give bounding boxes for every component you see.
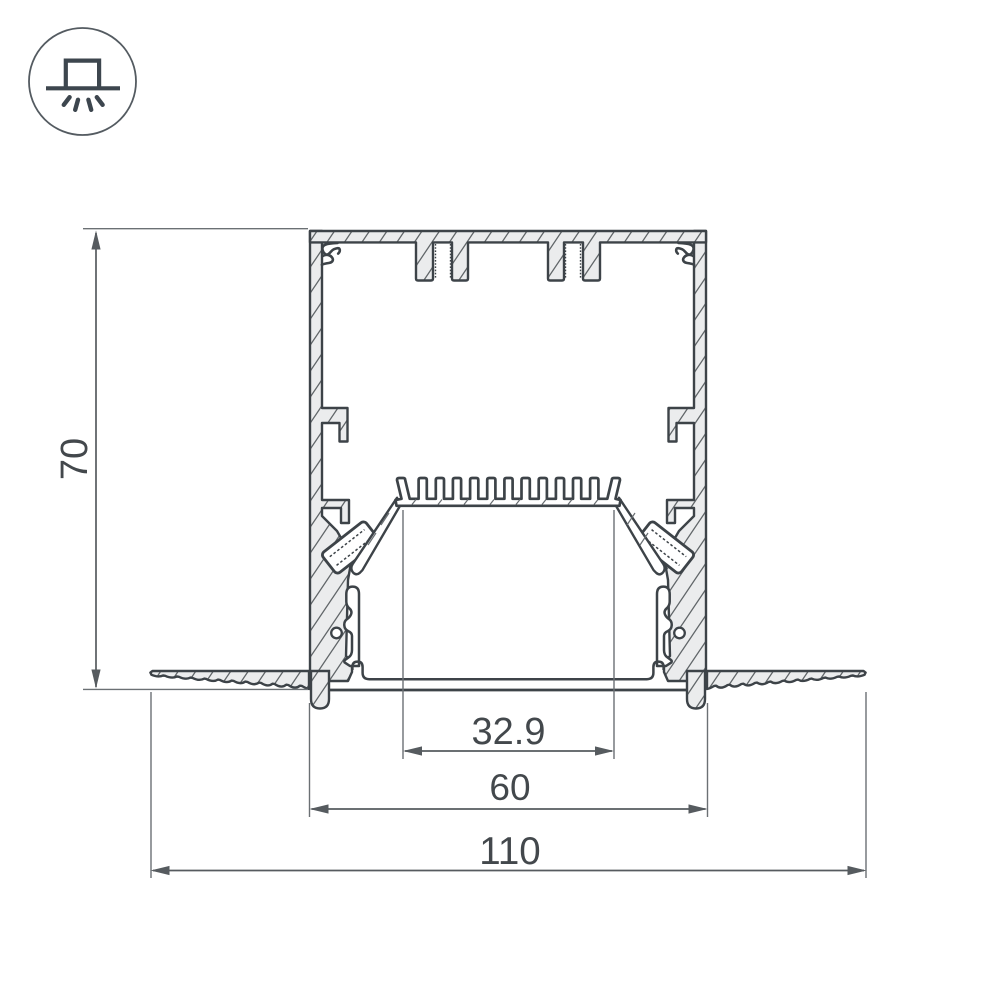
svg-text:60: 60 [489,767,530,808]
svg-text:110: 110 [479,830,540,873]
svg-text:70: 70 [54,438,96,480]
svg-text:32.9: 32.9 [472,711,546,753]
